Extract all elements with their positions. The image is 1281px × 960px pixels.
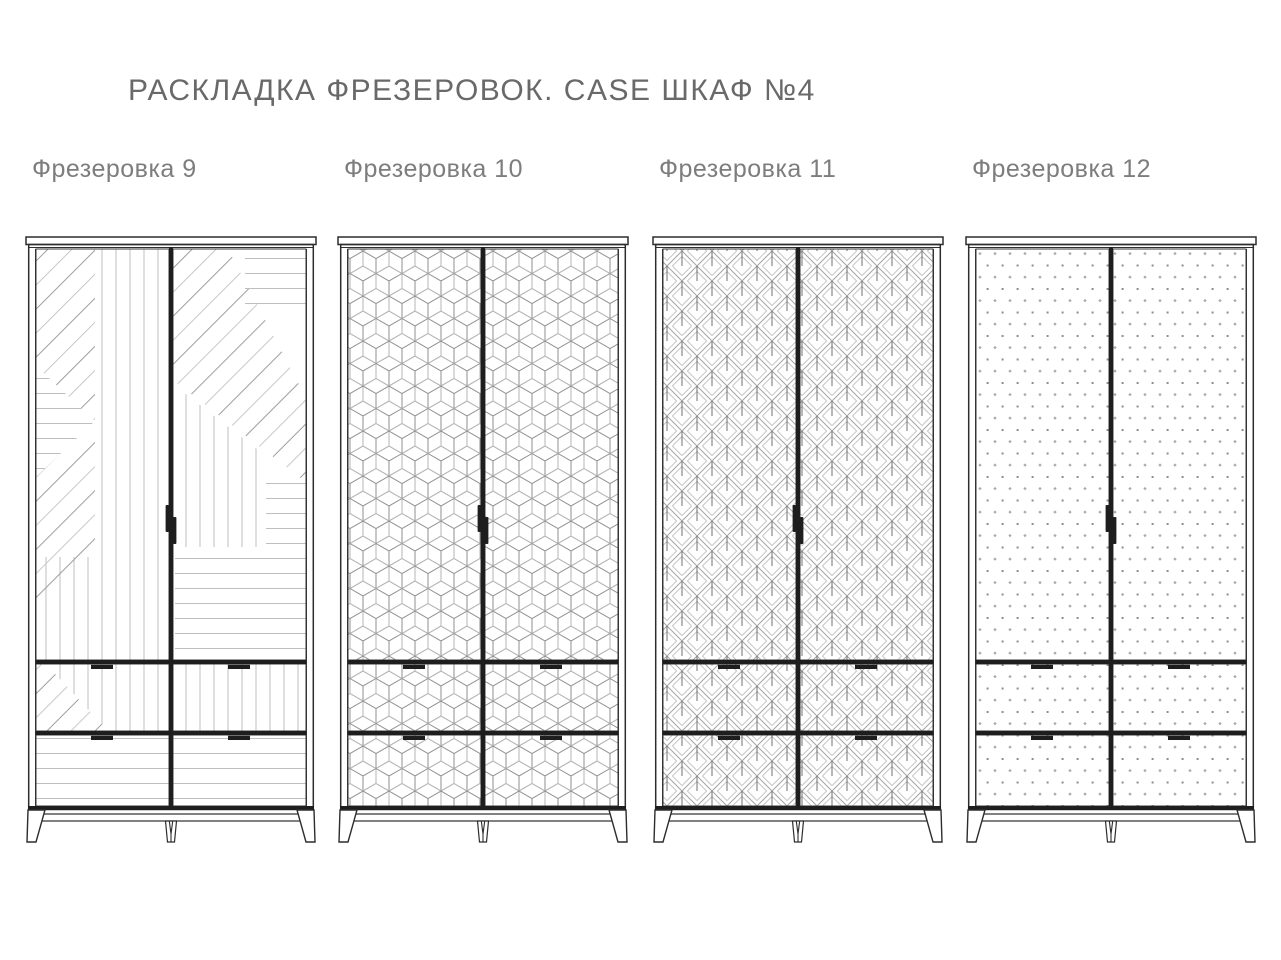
center-stile xyxy=(796,247,800,810)
center-stile xyxy=(169,247,173,810)
wardrobe-drawing-10 xyxy=(337,236,629,844)
wardrobe-svg-1 xyxy=(337,236,629,844)
wardrobe-svg-2 xyxy=(652,236,944,844)
base-rail xyxy=(41,814,301,821)
figure-label-12: Фрезеровка 12 xyxy=(972,155,1151,184)
leg-center xyxy=(478,821,489,842)
figure-label-9: Фрезеровка 9 xyxy=(32,155,197,184)
page-title: РАСКЛАДКА ФРЕЗЕРОВОК. CASE ШКАФ №4 xyxy=(128,74,816,108)
center-stile xyxy=(1109,247,1113,810)
base-rail xyxy=(668,814,928,821)
wardrobe-drawing-9 xyxy=(25,236,317,844)
wardrobe-drawing-12 xyxy=(965,236,1257,844)
figure-label-11: Фрезеровка 11 xyxy=(659,155,836,184)
wardrobe-svg-0 xyxy=(25,236,317,844)
leg-center xyxy=(1106,821,1117,842)
base-rail xyxy=(353,814,613,821)
center-stile xyxy=(481,247,485,810)
leg-center xyxy=(793,821,804,842)
wardrobe-svg-3 xyxy=(965,236,1257,844)
leg-center xyxy=(166,821,177,842)
wardrobe-drawing-11 xyxy=(652,236,944,844)
milling-layout-sheet: РАСКЛАДКА ФРЕЗЕРОВОК. CASE ШКАФ №4 Фрезе… xyxy=(0,0,1281,960)
base-rail xyxy=(981,814,1241,821)
figure-label-10: Фрезеровка 10 xyxy=(344,155,523,184)
